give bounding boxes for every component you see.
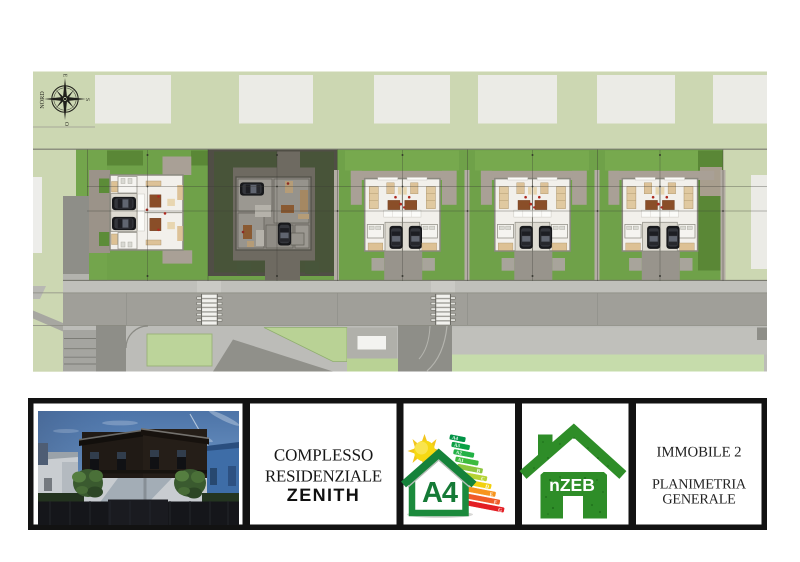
svg-text:COMPLESSO: COMPLESSO xyxy=(274,446,373,465)
svg-text:NORD: NORD xyxy=(39,91,46,109)
svg-text:RESIDENZIALE: RESIDENZIALE xyxy=(265,467,382,486)
svg-text:IMMOBILE 2: IMMOBILE 2 xyxy=(657,445,742,461)
svg-text:PLANIMETRIA: PLANIMETRIA xyxy=(652,477,747,493)
svg-text:A4: A4 xyxy=(422,477,458,509)
svg-text:E: E xyxy=(62,74,68,78)
svg-text:GENERALE: GENERALE xyxy=(662,492,735,508)
svg-text:nZEB: nZEB xyxy=(549,475,595,495)
svg-text:ZENITH: ZENITH xyxy=(287,485,360,505)
svg-text:O: O xyxy=(63,122,69,126)
svg-text:S: S xyxy=(84,98,90,101)
